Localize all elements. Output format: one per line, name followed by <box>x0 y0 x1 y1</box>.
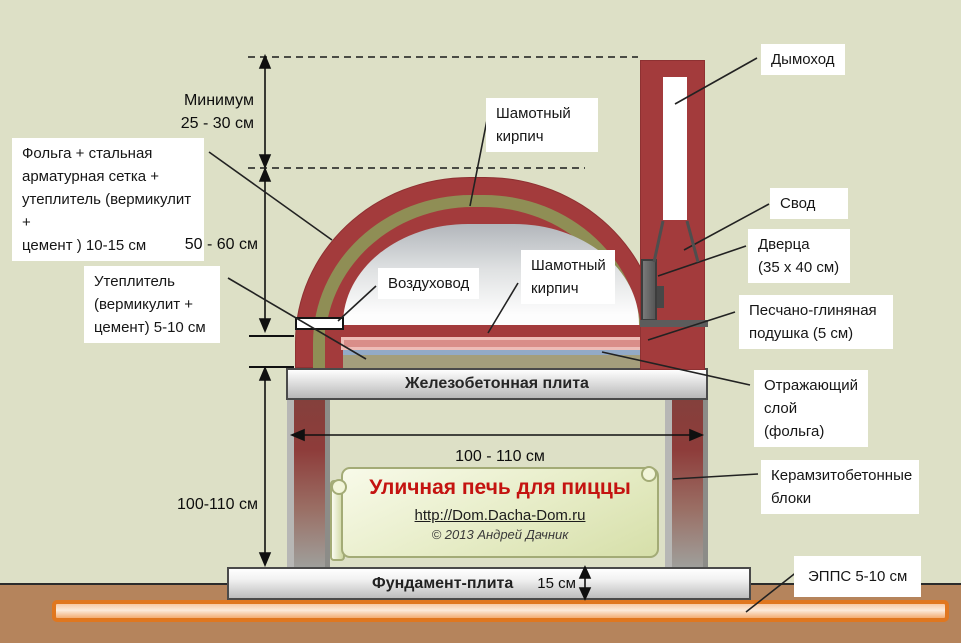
label-door-line2: (35 x 40 см) <box>758 256 840 279</box>
dim-stand-width: 100 - 110 см <box>425 445 575 468</box>
label-firebrick-dome-line1: Шамотный <box>496 102 588 125</box>
arrow-down-3 <box>260 553 270 565</box>
foundation-thickness-value: 15 см <box>537 575 576 592</box>
oven-door-handle <box>657 286 664 308</box>
label-insulation-line3: цемент) 5-10 см <box>94 316 210 339</box>
dim-min-clearance: Минимум 25 - 30 см <box>150 89 254 135</box>
pizza-oven-diagram: Фундамент-плита 15 см Железобетонная пли… <box>0 0 961 643</box>
label-firebrick-hearth-line2: кирпич <box>531 277 605 300</box>
label-reflective-line2: слой (фольга) <box>764 397 858 443</box>
hearth-insulation-layer <box>343 355 648 368</box>
label-foil-line2: арматурная сетка + <box>22 165 194 188</box>
oven-door <box>641 259 657 321</box>
label-insulation-line2: (вермикулит + <box>94 293 210 316</box>
dim-min-clearance-value: 25 - 30 см <box>150 112 254 135</box>
arrow-up-3 <box>260 368 270 380</box>
air-duct-opening <box>295 317 344 330</box>
epps-insulation-slab <box>52 600 949 622</box>
leader-foil <box>209 152 332 240</box>
label-firebrick-hearth: Шамотный кирпич <box>521 250 615 304</box>
foundation-slab: Фундамент-плита 15 см <box>227 567 751 600</box>
label-door-line1: Дверца <box>758 233 840 256</box>
diagram-title: Уличная печь для пиццы <box>369 476 631 500</box>
arrow-down-2 <box>260 319 270 331</box>
chimney-flue <box>663 77 687 220</box>
scroll-curl-right <box>641 466 657 482</box>
arrow-up-2 <box>260 169 270 181</box>
title-scroll: Уличная печь для пиццы http://Dom.Dacha-… <box>341 467 659 558</box>
label-sand-clay-cushion: Песчано-глиняная подушка (5 см) <box>739 295 893 349</box>
dim-dome-height: 50 - 60 см <box>160 233 258 256</box>
label-blocks: Керамзитобетонные блоки <box>761 460 919 514</box>
reinforced-concrete-slab: Железобетонная плита <box>286 368 708 400</box>
left-block-pillar <box>287 399 330 567</box>
label-firebrick-dome-line2: кирпич <box>496 125 588 148</box>
right-block-pillar <box>665 399 708 567</box>
dim-min-clearance-word: Минимум <box>150 89 254 112</box>
label-firebrick-dome: Шамотный кирпич <box>486 98 598 152</box>
label-insulation-line1: Утеплитель <box>94 270 210 293</box>
label-epps: ЭППС 5-10 см <box>794 556 921 597</box>
label-cushion-line1: Песчано-глиняная <box>749 299 883 322</box>
website-link[interactable]: http://Dom.Dacha-Dom.ru <box>415 507 586 524</box>
sand-clay-cushion-layer <box>341 337 650 350</box>
label-firebrick-hearth-line1: Шамотный <box>531 254 605 277</box>
foundation-slab-label: Фундамент-плита <box>372 575 513 593</box>
label-reflective-layer: Отражающий слой (фольга) <box>754 370 868 447</box>
scroll-curl-left <box>331 479 347 495</box>
door-sill <box>640 320 708 327</box>
label-door: Дверца (35 x 40 см) <box>748 229 850 283</box>
arrow-down-1 <box>260 155 270 167</box>
copyright-text: © 2013 Андрей Дачник <box>432 527 569 542</box>
label-insulation: Утеплитель (вермикулит + цемент) 5-10 см <box>84 266 220 343</box>
label-foil-line1: Фольга + стальная <box>22 142 194 165</box>
label-vault: Свод <box>770 188 848 219</box>
label-reflective-line1: Отражающий <box>764 374 858 397</box>
reinforced-concrete-slab-label: Железобетонная плита <box>405 375 589 393</box>
dim-stand-height: 100-110 см <box>158 493 258 516</box>
label-chimney: Дымоход <box>761 44 845 75</box>
label-blocks-line1: Керамзитобетонные <box>771 464 909 487</box>
arrow-up-1 <box>260 56 270 68</box>
label-air-duct: Воздуховод <box>378 268 479 299</box>
label-foil-line3: утеплитель (вермикулит + <box>22 188 194 234</box>
label-cushion-line2: подушка (5 см) <box>749 322 883 345</box>
label-blocks-line2: блоки <box>771 487 909 510</box>
